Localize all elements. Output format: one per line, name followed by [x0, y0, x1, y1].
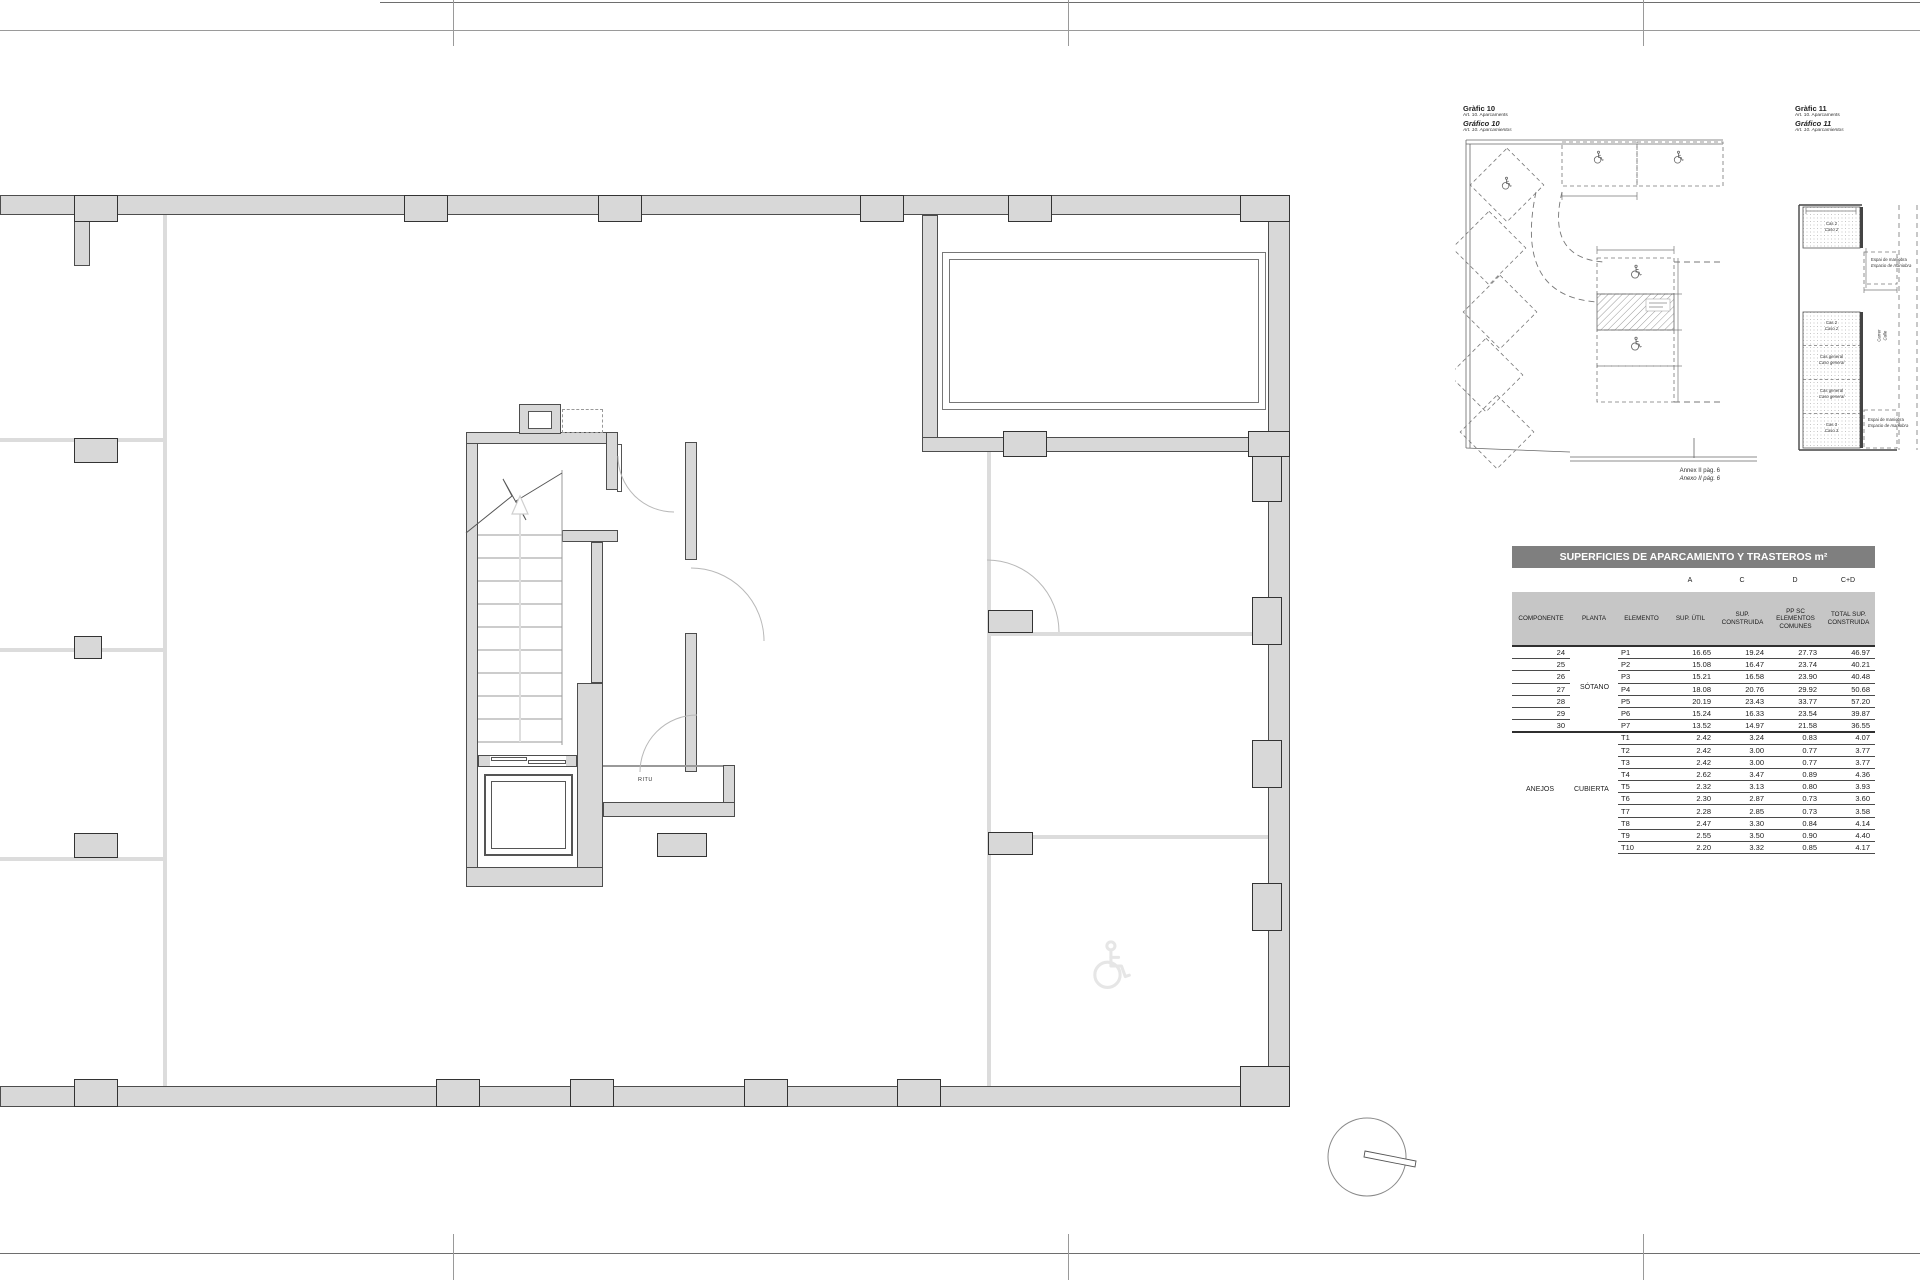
table-row: T12.423.240.834.07 — [1512, 732, 1875, 744]
grafico11-title: Gràfic 11 — [1795, 104, 1827, 113]
column-letter: C — [1739, 577, 1744, 584]
table-cell: 3.00 — [1716, 745, 1769, 757]
table-cell: 2.47 — [1665, 818, 1716, 830]
street-label: CarrerCalle — [1876, 316, 1887, 356]
table-cell: 4.07 — [1822, 732, 1875, 744]
table-row: 25P215.0816.4723.7440.21 — [1512, 659, 1875, 671]
table-cell: 3.00 — [1716, 757, 1769, 769]
table-cell: 0.73 — [1769, 805, 1822, 817]
column-header: TOTAL SUP. CONSTRUIDA — [1822, 592, 1875, 646]
table-cell: 23.74 — [1769, 659, 1822, 671]
table-cell — [1570, 769, 1618, 781]
north-indicator — [1328, 1118, 1416, 1196]
table-row: T82.473.300.844.14 — [1512, 818, 1875, 830]
table-cell: 0.83 — [1769, 732, 1822, 744]
table-cell: 2.85 — [1716, 805, 1769, 817]
table-cell: 0.73 — [1769, 793, 1822, 805]
table-cell: 3.24 — [1716, 732, 1769, 744]
table-cell — [1570, 659, 1618, 671]
table-cell: 40.21 — [1822, 659, 1875, 671]
stair-arrow — [512, 496, 528, 742]
bay-wall — [1860, 312, 1863, 448]
table-cell: T1 — [1618, 732, 1665, 744]
table-row: T32.423.000.773.77 — [1512, 757, 1875, 769]
table-cell: 16.65 — [1665, 647, 1716, 659]
table-cell — [1570, 793, 1618, 805]
table-cell — [1570, 805, 1618, 817]
table-cell: 18.08 — [1665, 684, 1716, 696]
table-row: T62.302.870.733.60 — [1512, 793, 1875, 805]
bay-wall — [1860, 207, 1863, 248]
table-cell — [1570, 830, 1618, 842]
grafico10-caption: Annex II pàg. 6 Anexo II pág. 6 — [1640, 468, 1720, 484]
table-cell — [1570, 757, 1618, 769]
table-cell: 46.97 — [1822, 647, 1875, 659]
table-row: 24P116.6519.2427.7346.97 — [1512, 647, 1875, 659]
column-header: PLANTA — [1570, 592, 1618, 646]
table-cell: P1 — [1618, 647, 1665, 659]
table-cell — [1512, 830, 1570, 842]
table-cell: 0.89 — [1769, 769, 1822, 781]
table-cell: 24 — [1512, 647, 1570, 659]
table-cell: 3.77 — [1822, 757, 1875, 769]
table-cell: 3.77 — [1822, 745, 1875, 757]
table-cell: 2.42 — [1665, 745, 1716, 757]
table-cell: 2.62 — [1665, 769, 1716, 781]
table-cell: P5 — [1618, 696, 1665, 708]
table-cell — [1570, 647, 1618, 659]
table-cell: 0.80 — [1769, 781, 1822, 793]
table-cell — [1512, 732, 1570, 744]
stair-break-line — [466, 473, 562, 533]
table-cell: 3.60 — [1822, 793, 1875, 805]
table-cell — [1512, 745, 1570, 757]
table-cell — [1570, 671, 1618, 683]
table-cell: 4.17 — [1822, 842, 1875, 854]
table-cell — [1570, 745, 1618, 757]
column-header: ELEMENTO — [1618, 592, 1665, 646]
table-cell: 16.47 — [1716, 659, 1769, 671]
planta-group-label: CUBIERTA — [1574, 786, 1609, 793]
column-header: SUP. ÚTIL — [1665, 592, 1716, 646]
column-letter: C+D — [1841, 577, 1855, 584]
table-cell: 23.43 — [1716, 696, 1769, 708]
table-cell: 15.24 — [1665, 708, 1716, 720]
column-header: PP SC ELEMENTOS COMUNES — [1769, 592, 1822, 646]
wheelchair-icon — [1095, 942, 1130, 988]
dimension-line — [1562, 192, 1637, 200]
table-row: T42.623.470.894.36 — [1512, 769, 1875, 781]
table-cell: 19.24 — [1716, 647, 1769, 659]
table-cell: P4 — [1618, 684, 1665, 696]
table-cell: 2.32 — [1665, 781, 1716, 793]
table-cell — [1570, 732, 1618, 744]
table-cell: T10 — [1618, 842, 1665, 854]
table-cell: 20.76 — [1716, 684, 1769, 696]
table-cell: 2.55 — [1665, 830, 1716, 842]
table-cell: 26 — [1512, 671, 1570, 683]
table-cell: 23.90 — [1769, 671, 1822, 683]
table-cell: 15.21 — [1665, 671, 1716, 683]
bay-label: Cas generalCaso general — [1803, 354, 1860, 365]
wheelchair-icon — [1594, 151, 1603, 163]
bay-label: Cas 2Caso 2 — [1803, 320, 1860, 331]
bay-label: Cas 3Caso 3 — [1803, 422, 1860, 433]
planta-group-label: SÓTANO — [1580, 684, 1609, 691]
table-cell — [1512, 793, 1570, 805]
wheelchair-icon — [1631, 337, 1641, 350]
table-cell: 39.87 — [1822, 708, 1875, 720]
table-row: 27P418.0820.7629.9250.68 — [1512, 684, 1875, 696]
table-row: T22.423.000.773.77 — [1512, 745, 1875, 757]
table-cell: 3.58 — [1822, 805, 1875, 817]
table-cell: 50.68 — [1822, 684, 1875, 696]
table-cell: T9 — [1618, 830, 1665, 842]
table-row: T102.203.320.854.17 — [1512, 842, 1875, 854]
table-cell: 2.30 — [1665, 793, 1716, 805]
top-parking-bays — [1562, 142, 1723, 186]
table-cell: 0.85 — [1769, 842, 1822, 854]
table-row: 26P315.2116.5823.9040.48 — [1512, 671, 1875, 683]
street-lines — [1899, 205, 1917, 450]
door-swing-arc — [618, 456, 1059, 772]
table-cell: 0.90 — [1769, 830, 1822, 842]
angled-parking-bays — [1455, 148, 1544, 469]
table-cell: 20.19 — [1665, 696, 1716, 708]
grafico10-drawing — [1455, 95, 1775, 495]
table-cell: 4.40 — [1822, 830, 1875, 842]
table-cell: T2 — [1618, 745, 1665, 757]
column-letter: D — [1792, 577, 1797, 584]
table-cell: 0.84 — [1769, 818, 1822, 830]
table-cell — [1512, 805, 1570, 817]
table-cell: 27.73 — [1769, 647, 1822, 659]
table-row: T72.282.850.733.58 — [1512, 805, 1875, 817]
table-body: 24P116.6519.2427.7346.9725P215.0816.4723… — [1512, 647, 1875, 854]
table-cell: 29.92 — [1769, 684, 1822, 696]
table-cell: 25 — [1512, 659, 1570, 671]
table-cell: 16.58 — [1716, 671, 1769, 683]
wheelchair-icon — [1502, 177, 1511, 189]
table-title: SUPERFICIES DE APARCAMIENTO Y TRASTEROS … — [1512, 546, 1875, 568]
table-header: COMPONENTE PLANTA ELEMENTO SUP. ÚTIL SUP… — [1512, 592, 1875, 646]
maneuver-label: Espai de maniobraEspacio de maniobra — [1871, 257, 1919, 268]
table-cell: 3.93 — [1822, 781, 1875, 793]
table-cell: T3 — [1618, 757, 1665, 769]
table-row: 28P520.1923.4333.7757.20 — [1512, 696, 1875, 708]
table-cell: 3.30 — [1716, 818, 1769, 830]
wheelchair-icon — [1631, 265, 1641, 278]
table-cell — [1570, 842, 1618, 854]
table-cell: T5 — [1618, 781, 1665, 793]
componente-group-label: ANEJOS — [1526, 786, 1554, 793]
table-cell: 0.77 — [1769, 757, 1822, 769]
tiny-annotation-lines — [1646, 299, 1670, 311]
table-row: 29P615.2416.3323.5439.87 — [1512, 708, 1875, 720]
table-cell: 3.32 — [1716, 842, 1769, 854]
bay-label: Cas 2Caso 2 — [1803, 221, 1860, 232]
table-cell: P3 — [1618, 671, 1665, 683]
table-cell: T6 — [1618, 793, 1665, 805]
table-cell: 3.13 — [1716, 781, 1769, 793]
table-cell — [1512, 757, 1570, 769]
column-header: SUP. CONSTRUIDA — [1716, 592, 1769, 646]
table-separator — [1512, 731, 1875, 733]
grafico11-title-es: Gráfico 11 — [1795, 119, 1831, 128]
table-cell — [1512, 842, 1570, 854]
table-cell: 29 — [1512, 708, 1570, 720]
table-cell — [1570, 708, 1618, 720]
drawing-sheet: RITU — [0, 0, 1920, 1280]
bay-label: Cas generalCaso general — [1803, 388, 1860, 399]
table-cell — [1512, 769, 1570, 781]
grafico11-subtitle-es: Art. 10. Aparcamientos — [1795, 128, 1844, 134]
table-cell: 40.48 — [1822, 671, 1875, 683]
table-cell: T7 — [1618, 805, 1665, 817]
table-cell: 3.50 — [1716, 830, 1769, 842]
table-cell: P6 — [1618, 708, 1665, 720]
maneuver-label: Espai de maniobraEspacio de maniobra — [1868, 417, 1918, 428]
table-cell: 2.20 — [1665, 842, 1716, 854]
wheelchair-icon — [1674, 151, 1683, 163]
column-header: COMPONENTE — [1512, 592, 1570, 646]
table-cell: P2 — [1618, 659, 1665, 671]
table-cell: 2.42 — [1665, 732, 1716, 744]
table-cell — [1570, 818, 1618, 830]
table-cell: 16.33 — [1716, 708, 1769, 720]
table-cell: T4 — [1618, 769, 1665, 781]
table-cell: 28 — [1512, 696, 1570, 708]
table-cell: 0.77 — [1769, 745, 1822, 757]
table-cell — [1570, 696, 1618, 708]
column-letter: A — [1688, 577, 1693, 584]
table-separator — [1512, 645, 1875, 647]
table-cell — [1512, 818, 1570, 830]
table-row: T52.323.130.803.93 — [1512, 781, 1875, 793]
table-cell: 3.47 — [1716, 769, 1769, 781]
table-cell: 33.77 — [1769, 696, 1822, 708]
table-cell: 23.54 — [1769, 708, 1822, 720]
table-row: T92.553.500.904.40 — [1512, 830, 1875, 842]
table-cell: 57.20 — [1822, 696, 1875, 708]
table-cell: 4.14 — [1822, 818, 1875, 830]
table-cell: 15.08 — [1665, 659, 1716, 671]
table-cell: 4.36 — [1822, 769, 1875, 781]
table-cell: 27 — [1512, 684, 1570, 696]
table-cell: 2.42 — [1665, 757, 1716, 769]
table-cell: 2.28 — [1665, 805, 1716, 817]
table-cell: 2.87 — [1716, 793, 1769, 805]
table-cell: T8 — [1618, 818, 1665, 830]
